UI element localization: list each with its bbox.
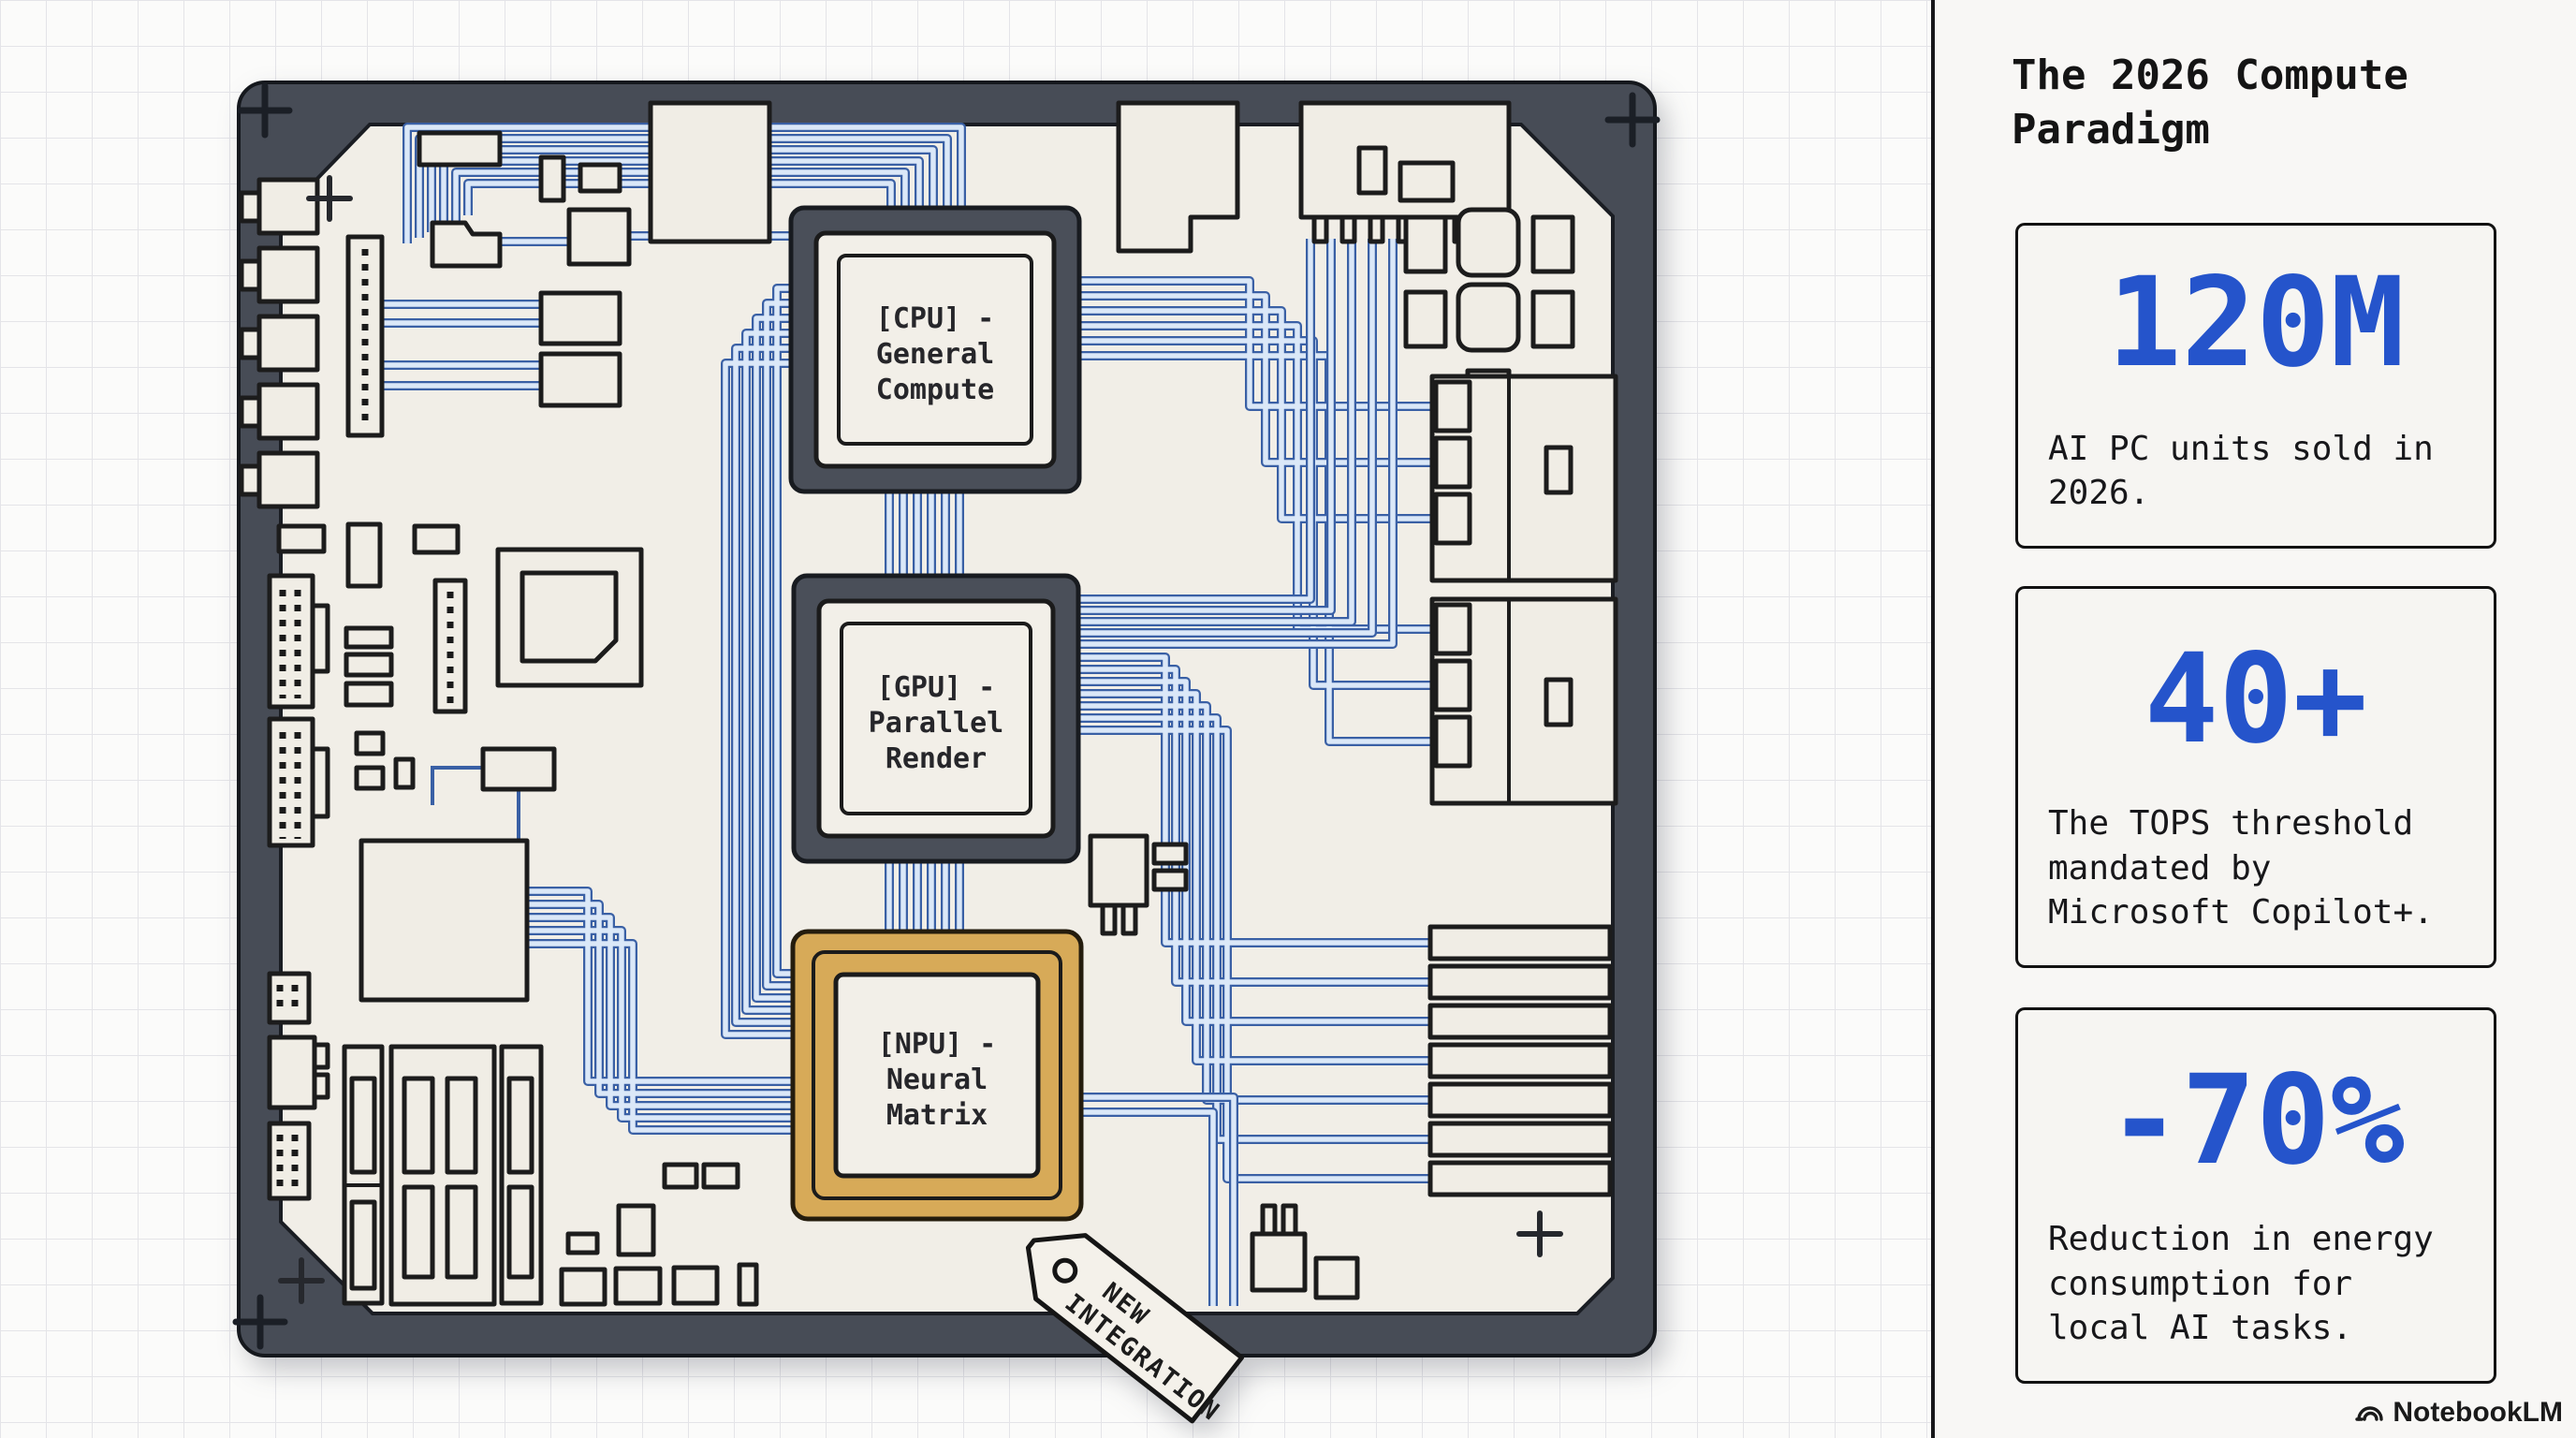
controller-chip — [361, 841, 527, 1000]
slot-bars — [1430, 927, 1610, 1195]
stat-desc: AI PC units sold in 2026. — [2048, 427, 2451, 516]
npu-chip: [NPU] - Neural Matrix — [793, 932, 1081, 1219]
gpu-label: Render — [885, 742, 987, 775]
pin-header — [435, 580, 465, 712]
stat-card-tops: 40+ The TOPS threshold mandated by Micro… — [2015, 586, 2496, 968]
gpu-label: [GPU] - — [877, 671, 995, 704]
notebooklm-watermark: NotebookLM — [2354, 1397, 2563, 1429]
cpu-label: [CPU] - — [876, 302, 994, 335]
npu-label: Neural — [886, 1064, 988, 1096]
cpu-chip: [CPU] - General Compute — [791, 208, 1079, 492]
infographic: [CPU] - General Compute [GPU] - Parallel… — [0, 0, 2576, 1438]
cpu-label: Compute — [876, 374, 994, 406]
socket-chip — [498, 550, 641, 685]
notebooklm-logo-icon — [2354, 1397, 2386, 1429]
gpu-chip: [GPU] - Parallel Render — [794, 576, 1078, 861]
circuit-board-diagram: [CPU] - General Compute [GPU] - Parallel… — [0, 0, 1931, 1438]
right-panel: The 2026 Compute Paradigm 120M AI PC uni… — [1935, 0, 2576, 1438]
stat-value: 120M — [2018, 261, 2494, 385]
npu-label: [NPU] - — [878, 1028, 996, 1061]
page-title: The 2026 Compute Paradigm — [2012, 49, 2456, 157]
npu-label: Matrix — [886, 1099, 988, 1132]
stat-desc: Reduction in energy consumption for loca… — [2048, 1217, 2451, 1351]
stat-desc: The TOPS threshold mandated by Microsoft… — [2048, 801, 2451, 935]
stat-value: 40+ — [2018, 638, 2494, 761]
dip-header — [270, 719, 313, 845]
stat-card-units: 120M AI PC units sold in 2026. — [2015, 223, 2496, 549]
ram-slots — [344, 1047, 541, 1304]
gpu-label: Parallel — [869, 707, 1004, 740]
dip-header — [270, 576, 313, 707]
cpu-label: General — [876, 338, 994, 371]
stat-value: -70% — [2018, 1059, 2494, 1182]
watermark-text: NotebookLM — [2393, 1397, 2563, 1429]
graph-paper-background: [CPU] - General Compute [GPU] - Parallel… — [0, 0, 1931, 1438]
stat-card-energy: -70% Reduction in energy consumption for… — [2015, 1007, 2496, 1384]
